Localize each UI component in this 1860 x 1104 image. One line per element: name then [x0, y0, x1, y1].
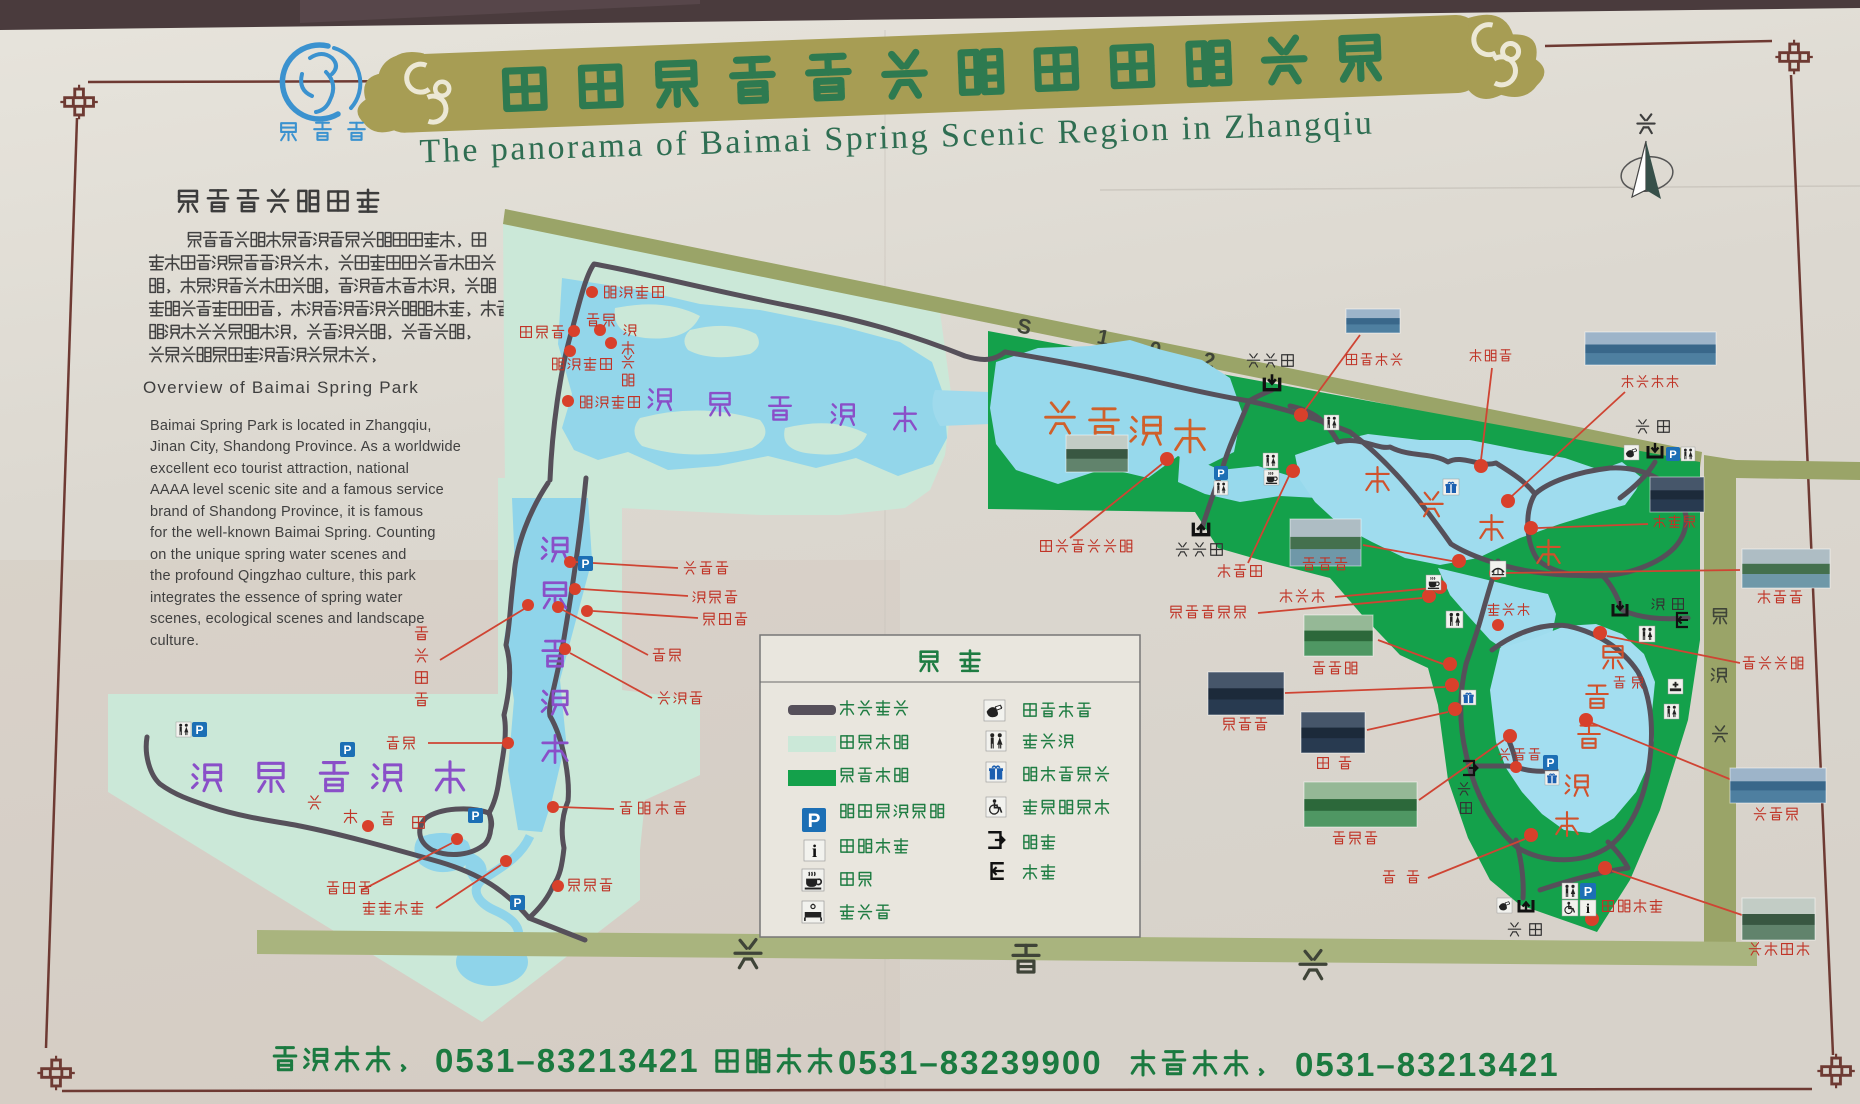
- svg-text:P: P: [1584, 884, 1593, 899]
- svg-text:scenes, ecological scenes and: scenes, ecological scenes and landscape: [150, 611, 425, 627]
- svg-text:i: i: [1586, 902, 1590, 917]
- svg-text:P: P: [1669, 449, 1677, 461]
- svg-text:0531–83213421: 0531–83213421: [435, 1042, 700, 1079]
- svg-text:for the well-known Baimai Spri: for the well-known Baimai Spring. Counti…: [150, 525, 436, 541]
- svg-text:P: P: [343, 743, 351, 757]
- svg-text:0531–83213421: 0531–83213421: [1295, 1046, 1560, 1083]
- svg-text:culture.: culture.: [150, 633, 199, 649]
- svg-text:P: P: [471, 809, 479, 823]
- svg-text:Baimai Spring Park is located: Baimai Spring Park is located in Zhangqi…: [150, 418, 432, 434]
- svg-text:AAAA level scenic site and a f: AAAA level scenic site and a famous serv…: [150, 482, 444, 498]
- svg-text:the profound Qingzhao culture,: the profound Qingzhao culture, this park: [150, 568, 416, 584]
- svg-text:brand of Shandong Province, it: brand of Shandong Province, it is famous: [150, 504, 423, 520]
- svg-text:on the unique spring water sce: on the unique spring water scenes and: [150, 547, 406, 563]
- svg-text:P: P: [808, 811, 821, 832]
- svg-text:0531–83239900: 0531–83239900: [838, 1044, 1103, 1081]
- svg-text:P: P: [195, 723, 203, 737]
- svg-text:P: P: [581, 557, 589, 571]
- svg-text:P: P: [1217, 468, 1225, 480]
- svg-text:integrates the essence of spri: integrates the essence of spring water: [150, 590, 403, 606]
- svg-text:Jinan City, Shandong Province.: Jinan City, Shandong Province. As a worl…: [150, 439, 461, 455]
- svg-text:Overview of Baimai Spring Park: Overview of Baimai Spring Park: [143, 378, 419, 397]
- svg-text:P: P: [1546, 756, 1554, 770]
- svg-text:i: i: [812, 841, 817, 861]
- svg-text:excellent eco tourist attracti: excellent eco tourist attraction, nation…: [150, 461, 409, 477]
- svg-text:P: P: [513, 896, 521, 910]
